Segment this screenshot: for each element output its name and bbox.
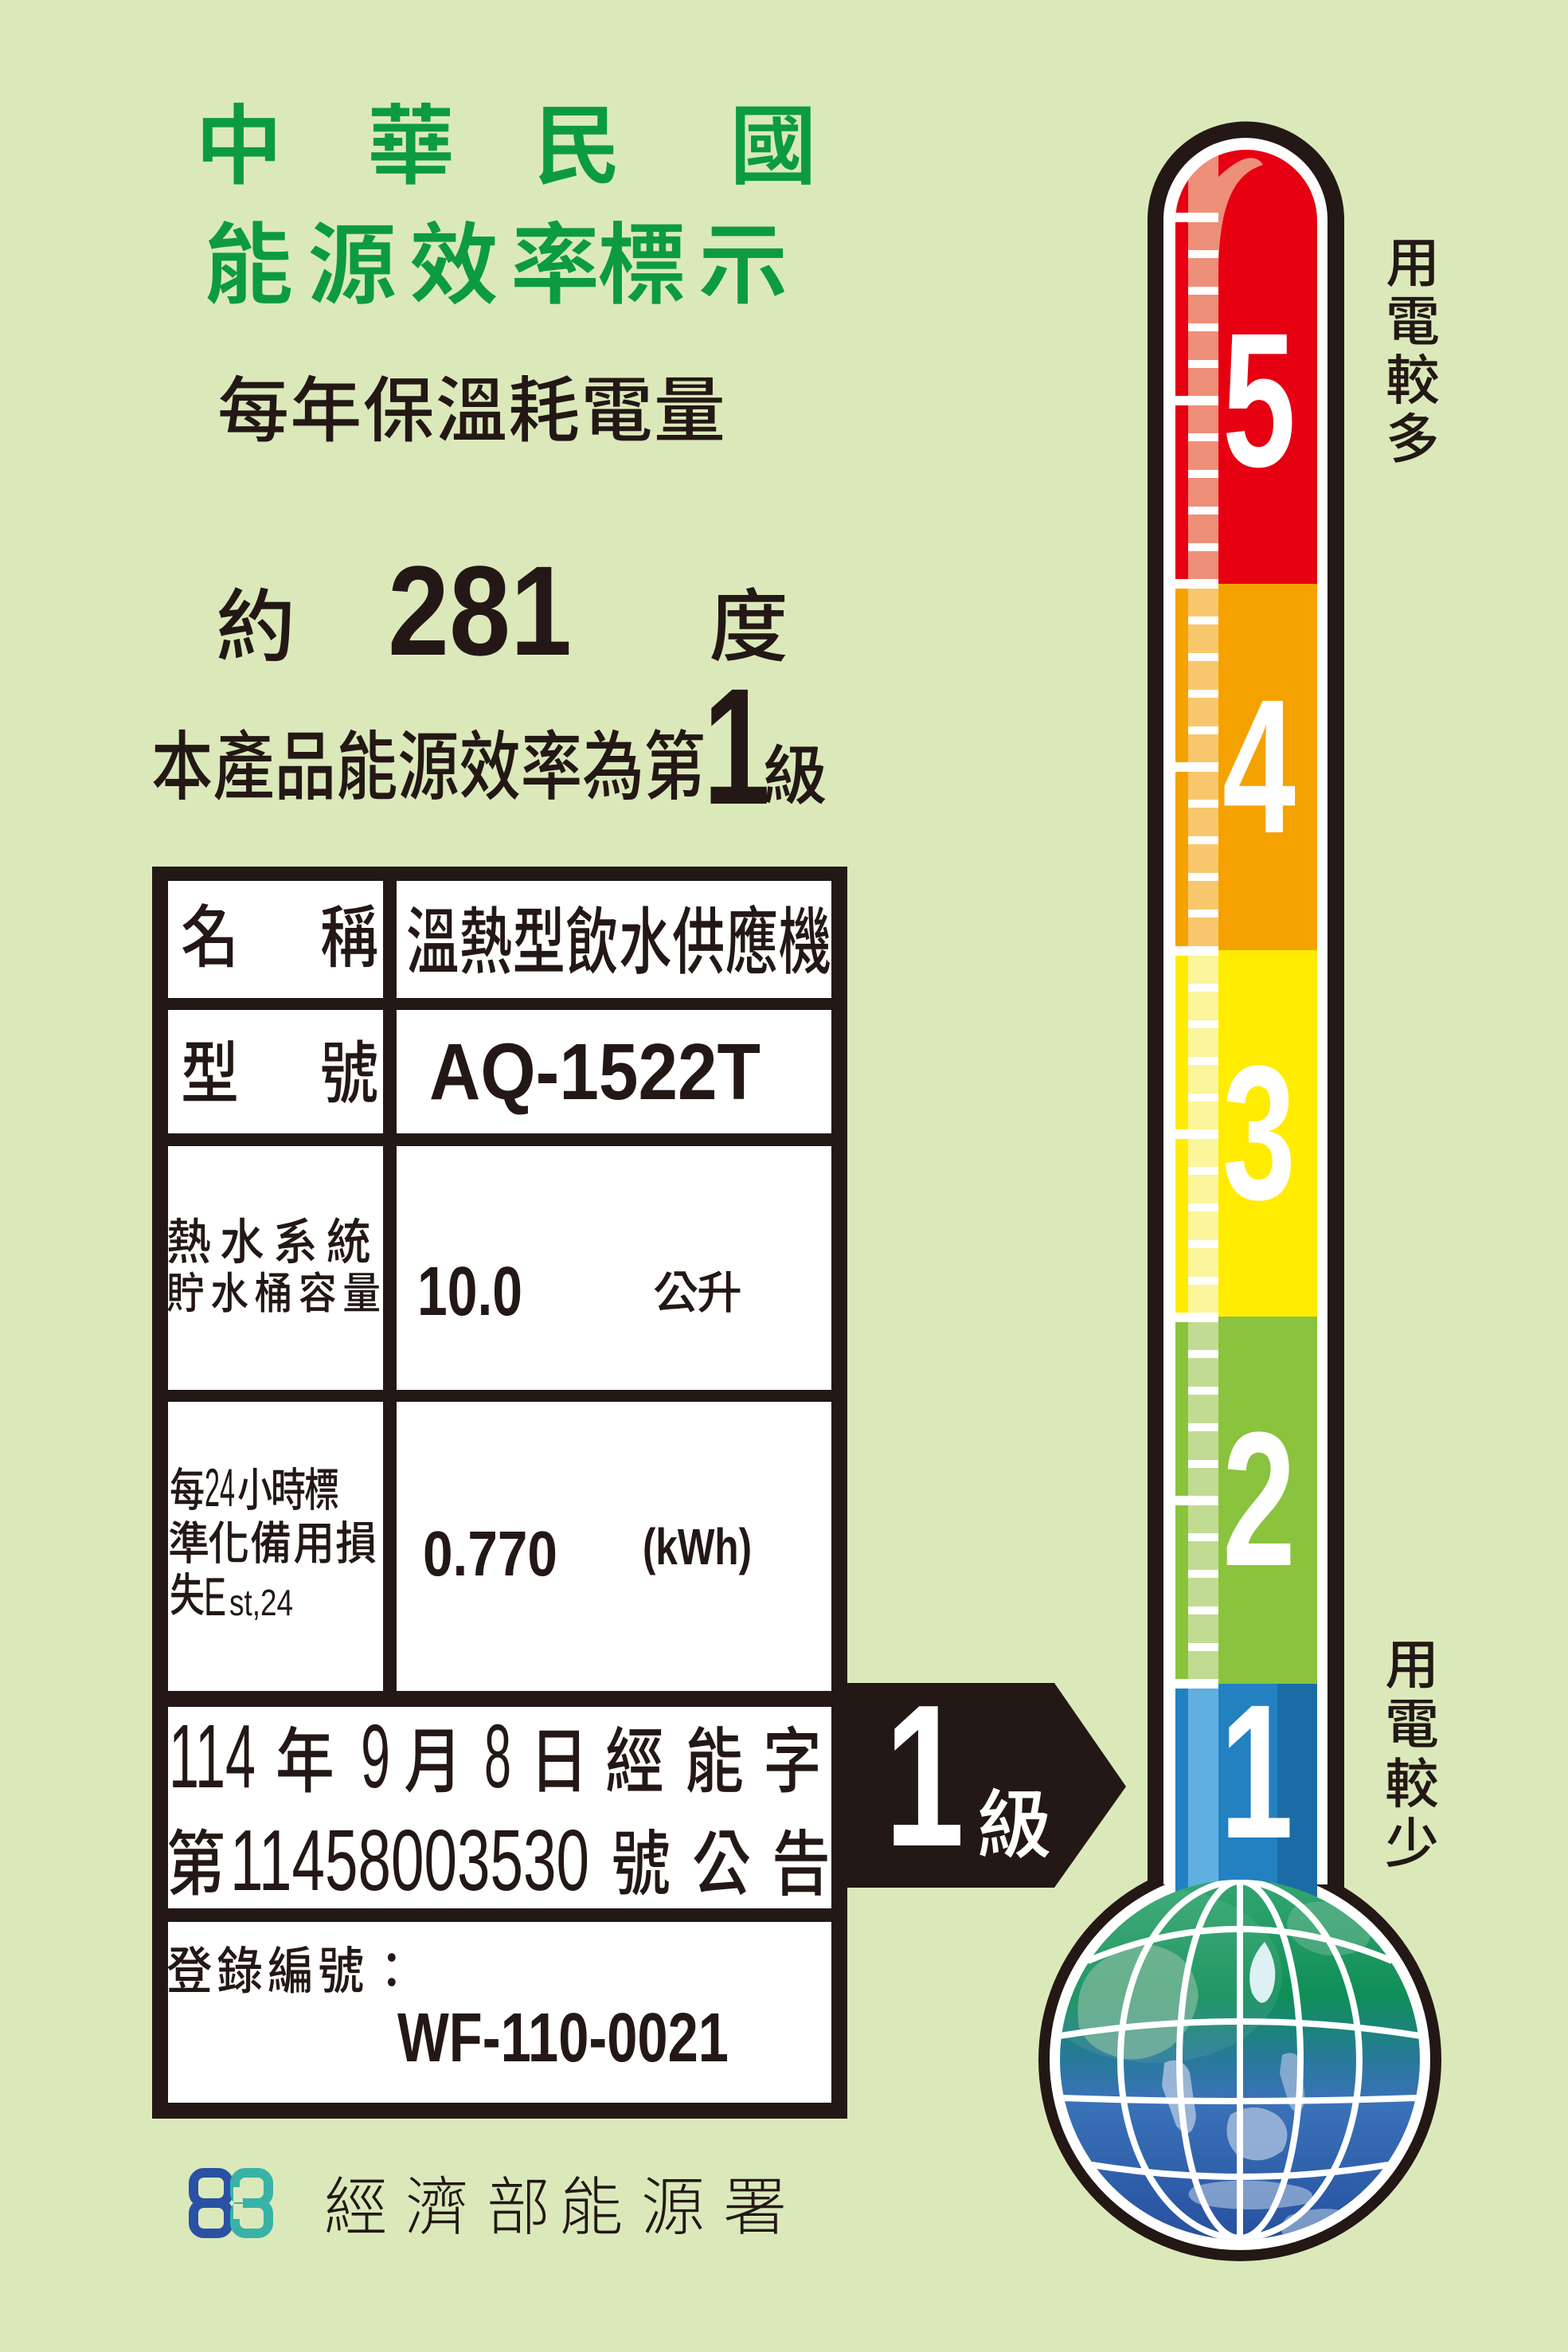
svg-text:24: 24 xyxy=(205,1458,235,1518)
svg-text:1: 1 xyxy=(1220,1665,1293,1878)
svg-text:8: 8 xyxy=(484,1706,511,1806)
svg-text:st,24: st,24 xyxy=(229,1582,293,1623)
svg-text:1: 1 xyxy=(703,655,770,839)
svg-text:3: 3 xyxy=(1222,1026,1296,1239)
svg-text:4: 4 xyxy=(1222,659,1296,873)
svg-text:9: 9 xyxy=(361,1706,390,1806)
svg-text:281: 281 xyxy=(388,539,572,682)
svg-text:(kWh): (kWh) xyxy=(643,1518,752,1575)
svg-text:E: E xyxy=(204,1567,226,1627)
svg-text:5: 5 xyxy=(1222,293,1296,507)
svg-text:0.770: 0.770 xyxy=(423,1518,557,1589)
svg-text:114: 114 xyxy=(169,1706,256,1806)
svg-text:2: 2 xyxy=(1222,1392,1296,1606)
svg-text:11458003530: 11458003530 xyxy=(230,1812,589,1909)
svg-text:10.0: 10.0 xyxy=(417,1253,522,1330)
svg-text:AQ-1522T: AQ-1522T xyxy=(429,1027,761,1117)
svg-text:WF-110-0021: WF-110-0021 xyxy=(397,1999,729,2076)
svg-text:1: 1 xyxy=(885,1662,964,1888)
